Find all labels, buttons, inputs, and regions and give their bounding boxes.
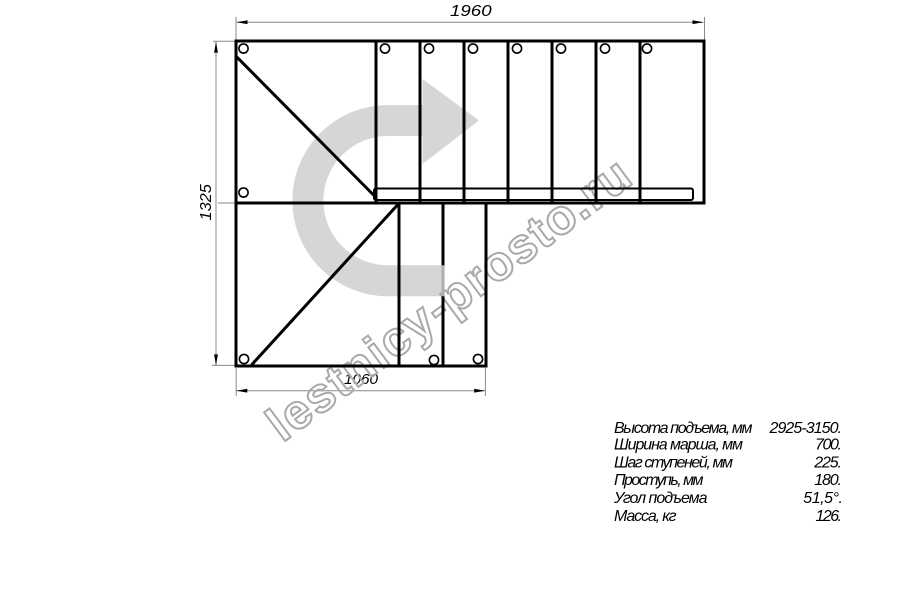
svg-text:Ширина марша, мм: Ширина марша, мм — [614, 437, 743, 454]
svg-text:Масса, кг: Масса, кг — [614, 508, 677, 525]
svg-text:Шаг ступеней, мм: Шаг ступеней, мм — [614, 455, 733, 472]
svg-text:126.: 126. — [816, 508, 843, 525]
svg-text:1960: 1960 — [450, 3, 492, 20]
svg-text:51,5°.: 51,5°. — [803, 490, 843, 507]
svg-text:Высота подъема, мм: Высота подъема, мм — [614, 420, 753, 437]
svg-text:225.: 225. — [813, 455, 842, 472]
svg-text:Угол подъема: Угол подъема — [613, 490, 708, 507]
svg-text:2925-3150.: 2925-3150. — [769, 420, 843, 437]
svg-text:1325: 1325 — [198, 184, 215, 220]
svg-text:180.: 180. — [814, 472, 842, 489]
svg-text:700.: 700. — [815, 437, 842, 454]
svg-text:Проступь, мм: Проступь, мм — [614, 472, 704, 489]
